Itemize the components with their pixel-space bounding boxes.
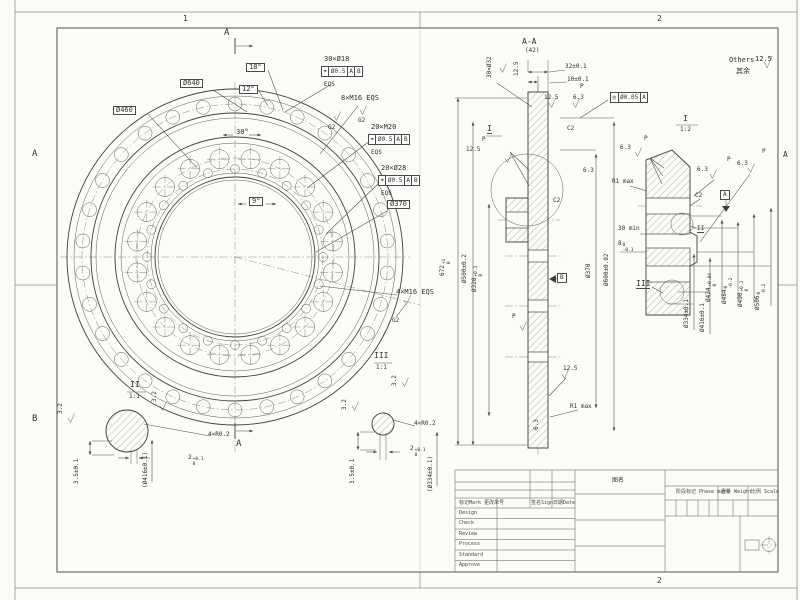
dim-460: Ø460 [113,106,136,115]
callout-20-holes: 20×Ø28 [381,165,406,172]
callout-4-taps: 4×M16 EQS [396,289,434,296]
bolt-hole [282,324,291,333]
dim-3-5: 3.5±0.1 [74,459,80,484]
datum-ref-a: A [348,67,356,76]
bolt-hole [318,374,332,388]
position-tolerance-frame-20holes: ⌖ Ø0.5 A B [378,175,420,186]
dim-490: Ø490+0.20 [738,281,750,307]
callout-30x32: 30×Ø32 [487,56,493,78]
datum-ref-b: B [402,135,409,144]
tb-header-date: 日期Date [553,501,575,506]
bolt-hole-centermark [238,342,263,367]
dim-320: Ø320+0.10 [472,266,484,292]
finish-p: P [482,137,486,143]
position-tolerance: Ø0.5 [329,67,347,76]
chamfer-c2: C2 [567,126,574,132]
tb-row-design: Design [459,511,477,516]
roughness-12-5: 12.5 [514,62,520,76]
roughness-6-3: 6.3 [697,167,708,173]
concentricity-tolerance: Ø0.05 [619,93,641,102]
position-symbol: ⌖ [322,67,329,76]
zone-number-bottom-2: 2 [657,577,662,585]
dim-8: 80-0.1 [618,241,633,253]
bolt-hole [159,201,168,210]
dim-370-front: Ø370 [387,200,410,209]
r1-max-note: R1 max [612,179,634,185]
tb-row-check: Check [459,521,474,526]
detail-ref-iii: III [636,280,650,289]
zone-letter-b: B [32,415,37,424]
datum-ref-a: A [405,176,413,185]
dim-506: Ø5060-0.2 [755,284,767,310]
bolt-hole [203,169,212,178]
detail-ref-ii: II [697,226,704,233]
callout-20-taps: 20×M20 [371,124,396,131]
finish-p: P [580,84,584,90]
bolt-hole [96,174,110,188]
zone-letter-right-a: A [783,151,788,159]
section-scale: (42) [525,48,539,54]
dim-500: Ø500±0.2 [462,254,468,283]
angle-9: 9° [249,197,263,206]
eqs-note: EQS [381,191,392,197]
dim-10: 10±0.1 [567,77,589,83]
roughness-6-3: 6.3 [737,161,748,167]
eqs-note: EQS [371,150,382,156]
dim-484: Ø4840-0.2 [722,278,734,304]
tb-scale: 比例 Scale [751,490,779,495]
g2-note: G2 [328,125,335,131]
g2-note: G2 [392,318,399,324]
chamfer-c2: C2 [695,193,702,199]
detail-iii-label: III [374,352,388,360]
datum-ref-a: A [395,135,403,144]
r1-max-note: R1 max [570,404,592,410]
tb-header-mark: 标记Mark 更改单号 [459,501,504,506]
g2-note: G2 [358,118,365,124]
dim-416: Ø416±0.1 [700,303,706,332]
dim-2: 2+0.10 [410,446,425,458]
finish-p: P [512,314,516,320]
datum-ref-b: B [412,176,419,185]
bolt-hole [166,390,180,404]
others-roughness-value: 12.5 [755,56,772,63]
roughness-6-3: 6.3 [573,95,584,101]
drawing-geometry [0,0,800,600]
tb-header-sign: 签名Sign [531,501,553,506]
dim-424: Ø424+0.040 [706,273,718,302]
datum-a-flag: A [720,190,730,200]
bolt-hole-centermark [178,333,203,358]
section-aa [455,60,614,456]
position-tolerance: Ø0.5 [386,176,404,185]
concentricity-tolerance-frame: ◎ Ø0.05 A [610,92,648,103]
dim-600: Ø600±0.02 [604,253,610,286]
tb-row-standard: Standard [459,553,483,558]
roughness-6-3: 6.3 [583,168,594,174]
finish-p: P [727,157,731,163]
radius-note: 4×R0.2 [414,421,436,427]
dim-672: 672+10 [440,259,452,276]
bolt-hole [260,100,274,114]
detail-ref-i: I [487,125,492,134]
detail-ii [68,392,210,482]
dim-2: 2+0.10 [188,455,203,467]
tb-row-approve: Approve [459,563,480,568]
roughness-12-5: 12.5 [544,95,558,101]
dim-30-min: 30 min [618,226,640,232]
radius-note: 4×R0.2 [208,432,230,438]
bolt-hole-centermark [134,200,159,225]
roughness-12-5: 12.5 [466,147,480,153]
dim-3-5: 3.5±0.1 [350,459,356,484]
title-block-grid [455,470,778,572]
tb-row-review: Review [459,532,477,537]
angle-18: 18° [246,63,265,72]
bolt-hole [147,225,156,234]
roughness-12-5: 12.5 [563,366,577,372]
roughness-3-2: 3.2 [342,399,348,410]
eqs-note: EQS [324,82,335,88]
bolt-hole-centermark [311,200,336,225]
dim-370-section: Ø370 [586,264,592,278]
section-title: A-A [522,38,536,46]
detail-i-label: I [683,115,688,123]
zone-number-top-1: 1 [183,15,188,23]
detail-i-scale: 1:2 [680,127,691,133]
concentricity-symbol: ◎ [611,93,619,102]
position-tolerance-frame-30holes: ⌖ Ø0.5 A B [321,66,363,77]
dim-334-ref: (Ø334±0.1) [428,456,434,492]
concentricity-datum: A [641,93,648,102]
roughness-3-2: 3.2 [152,391,158,402]
bolt-hole-centermark [178,156,203,181]
dim-640: Ø640 [180,79,203,88]
callout-8-taps: 8×M16 EQS [341,95,379,102]
dim-32: 32±0.1 [565,64,587,70]
tb-weight: 重量 Weight [721,490,752,495]
zone-number-top-2: 2 [657,15,662,23]
others-label: Others [729,57,754,64]
roughness-6-3: 6.3 [620,145,631,151]
others-label-cn: 其余 [736,68,750,75]
angle-30: 30° [236,129,249,136]
zone-letter-a: A [32,150,37,159]
chamfer-c2: C2 [553,198,560,204]
detail-iii-scale: 1:1 [376,365,387,371]
dim-334: Ø334±0.1 [684,299,690,328]
position-tolerance: Ø0.5 [376,135,394,144]
datum-b-flag: B [557,273,567,283]
datum-ref-b: B [355,67,362,76]
drawing-sheet: A B A 1 2 2 Others 12.5 其余 ◎ Ø0.05 A A A… [0,0,800,600]
position-tolerance-frame-20taps: ⌖ Ø0.5 A B [368,134,410,145]
detail-ii-scale: 1:1 [129,394,140,400]
bolt-hole [258,336,267,345]
position-symbol: ⌖ [369,135,376,144]
section-arrow-label-bottom: A [236,440,241,449]
bolt-hole [114,148,128,162]
position-symbol: ⌖ [379,176,386,185]
finish-p: P [762,149,766,155]
angle-12: 12° [239,85,258,94]
bolt-hole [314,280,323,289]
bolt-hole [96,327,110,341]
dim-416-ref: (Ø416±0.1) [143,452,149,488]
tb-row-process: Process [459,542,480,547]
tb-title: 图名 [612,478,624,484]
callout-30-holes: 30×Ø18 [324,56,349,63]
detail-ii-label: II [130,381,140,389]
section-arrow-label-top: A [224,29,229,38]
finish-p: P [644,136,648,142]
roughness-3-2: 3.2 [58,403,64,414]
roughness-6-3: 6.3 [534,419,540,430]
roughness-3-2: 3.2 [392,375,398,386]
